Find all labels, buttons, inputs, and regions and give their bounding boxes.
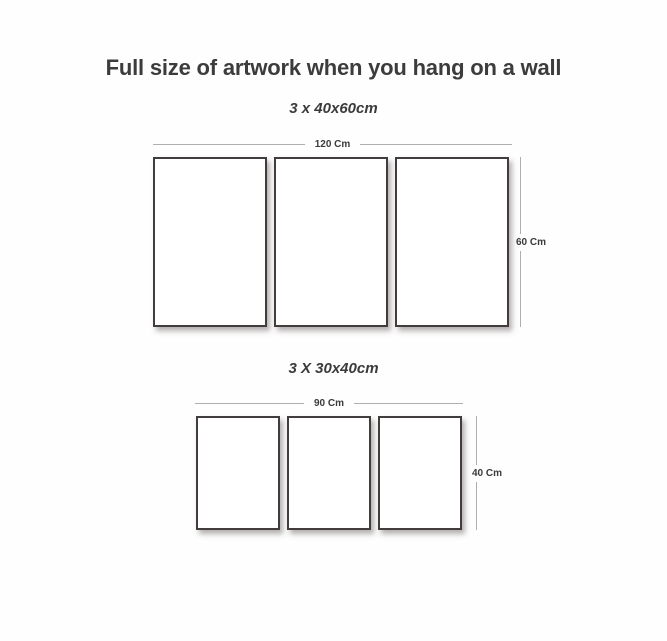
artwork-size-diagram: Full size of artwork when you hang on a …	[0, 0, 667, 641]
artwork-panel	[378, 416, 462, 530]
artwork-panel	[153, 157, 267, 327]
dimension-line	[520, 157, 521, 234]
group2-panel-row	[196, 416, 462, 530]
group1-width-label: 120 Cm	[305, 139, 361, 150]
group1-width-dimension: 120 Cm	[153, 138, 512, 150]
dimension-line	[476, 482, 477, 531]
group1-height-dimension: 60 Cm	[516, 157, 558, 327]
group2-size-label: 3 X 30x40cm	[0, 360, 667, 377]
dimension-line	[520, 251, 521, 328]
artwork-panel	[196, 416, 280, 530]
group1-height-label: 60 Cm	[516, 234, 546, 251]
group2-height-label: 40 Cm	[472, 465, 502, 482]
dimension-line	[354, 403, 463, 404]
dimension-line	[153, 144, 305, 145]
group1-size-label: 3 x 40x60cm	[0, 100, 667, 117]
dimension-line	[476, 416, 477, 465]
group2-width-dimension: 90 Cm	[195, 397, 463, 409]
group2-height-dimension: 40 Cm	[472, 416, 514, 530]
dimension-line	[195, 403, 304, 404]
artwork-panel	[287, 416, 371, 530]
artwork-panel	[274, 157, 388, 327]
dimension-line	[360, 144, 512, 145]
page-title: Full size of artwork when you hang on a …	[0, 55, 667, 81]
artwork-panel	[395, 157, 509, 327]
group1-panel-row	[153, 157, 509, 327]
group2-width-label: 90 Cm	[304, 398, 354, 409]
